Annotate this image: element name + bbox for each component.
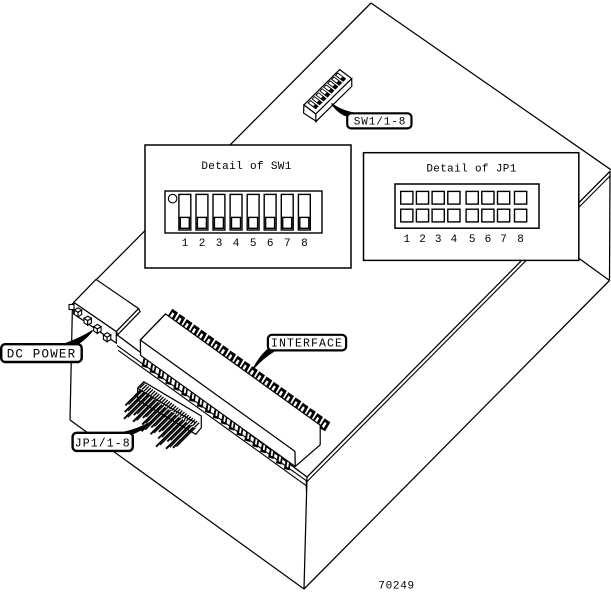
svg-text:8: 8 [517, 234, 524, 246]
svg-text:2: 2 [199, 238, 206, 250]
svg-text:2: 2 [419, 234, 426, 246]
svg-text:JP1/1-8: JP1/1-8 [75, 438, 131, 451]
svg-text:7: 7 [500, 234, 507, 246]
svg-text:Detail of JP1: Detail of JP1 [426, 164, 516, 176]
svg-text:SW1/1-8: SW1/1-8 [354, 117, 407, 129]
svg-text:8: 8 [301, 238, 308, 250]
svg-text:3: 3 [216, 238, 223, 250]
svg-text:6: 6 [485, 234, 492, 246]
svg-text:70249: 70249 [378, 581, 415, 593]
svg-text:4: 4 [233, 238, 240, 250]
svg-text:6: 6 [267, 238, 274, 250]
svg-text:5: 5 [250, 238, 257, 250]
svg-text:7: 7 [284, 238, 291, 250]
svg-text:3: 3 [435, 234, 442, 246]
svg-text:DC POWER: DC POWER [7, 348, 77, 362]
svg-text:4: 4 [451, 234, 458, 246]
svg-text:INTERFACE: INTERFACE [271, 337, 343, 350]
svg-text:1: 1 [182, 238, 189, 250]
svg-text:Detail of SW1: Detail of SW1 [201, 161, 291, 173]
svg-text:5: 5 [469, 234, 476, 246]
svg-text:1: 1 [403, 234, 410, 246]
